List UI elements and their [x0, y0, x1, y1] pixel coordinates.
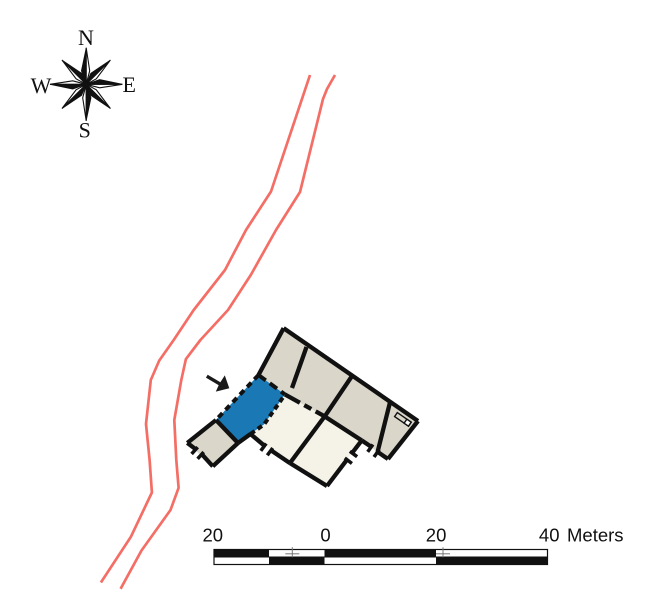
svg-text:N: N — [78, 25, 94, 50]
svg-text:W: W — [31, 73, 52, 98]
svg-text:40: 40 — [539, 525, 560, 546]
svg-text:S: S — [79, 117, 91, 142]
svg-text:20: 20 — [426, 525, 447, 546]
svg-text:20: 20 — [203, 525, 224, 546]
svg-text:0: 0 — [320, 525, 330, 546]
svg-text:Meters: Meters — [567, 525, 624, 546]
svg-text:E: E — [122, 72, 135, 97]
